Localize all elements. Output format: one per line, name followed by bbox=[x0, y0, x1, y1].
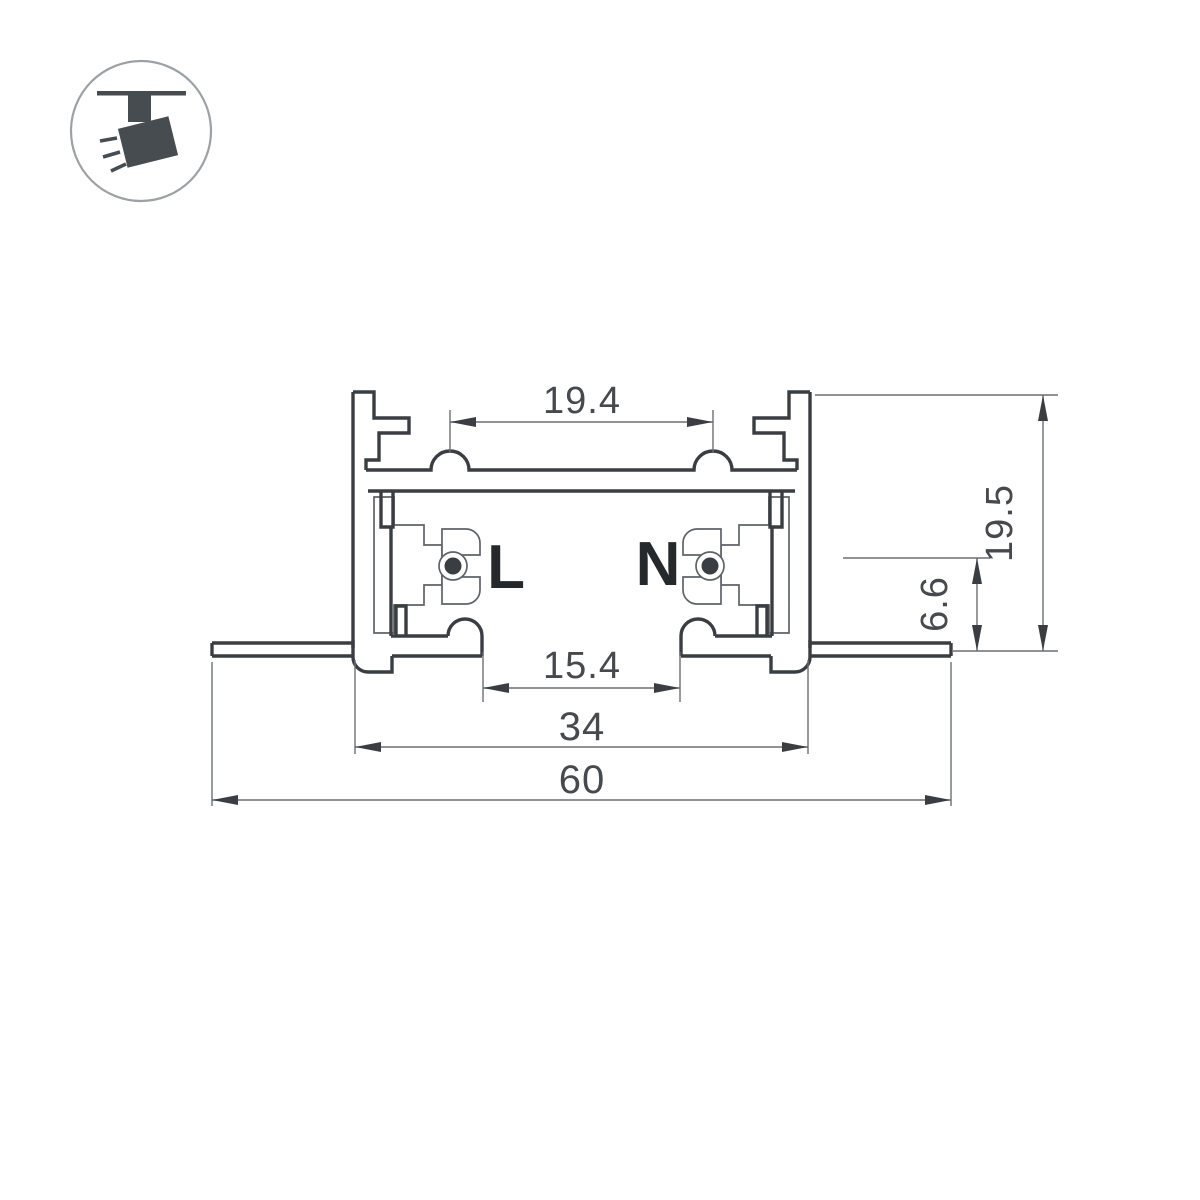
dim-text-height: 19.5 bbox=[979, 484, 1021, 562]
spotlight-badge bbox=[71, 61, 211, 201]
dim-text-top-span: 19.4 bbox=[543, 380, 621, 422]
insulator-right-comb bbox=[721, 497, 789, 633]
drawing-page: L N bbox=[0, 0, 1200, 1200]
dim-text-slot: 15.4 bbox=[543, 645, 621, 687]
dim-text-overall: 60 bbox=[559, 758, 606, 802]
cavity-top-outer bbox=[366, 451, 797, 470]
dim-text-contact: 6.6 bbox=[914, 576, 956, 632]
label-live: L bbox=[487, 533, 525, 602]
insulator-left-comb bbox=[374, 497, 442, 633]
extrusion-outline bbox=[212, 392, 951, 672]
dim-text-body: 34 bbox=[559, 705, 606, 749]
profile-drawing-svg: L N bbox=[0, 0, 1200, 1200]
label-neutral: N bbox=[636, 530, 681, 599]
contact-dot-right bbox=[702, 558, 719, 575]
contact-dot-left bbox=[445, 558, 462, 575]
